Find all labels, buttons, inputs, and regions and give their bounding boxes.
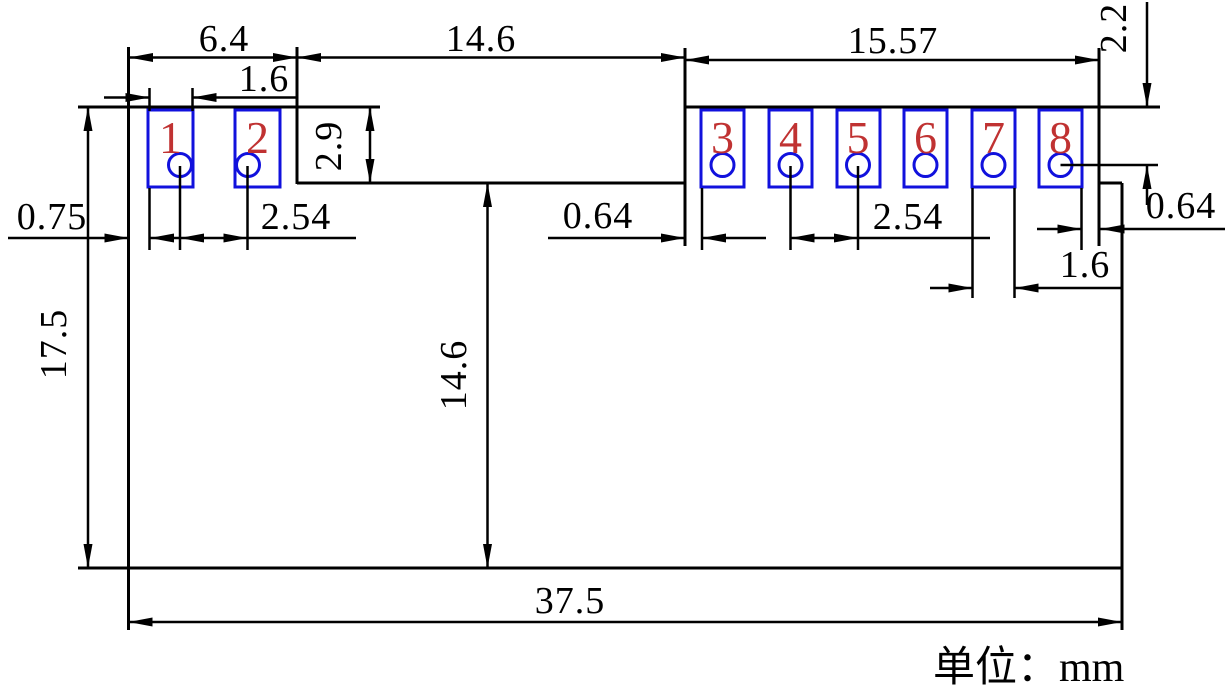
dim-pad7-width: 1.6: [930, 244, 1122, 293]
dim-total-width: 37.5: [129, 580, 1123, 627]
unit-label: 单位：mm: [933, 644, 1125, 691]
arrowhead-left: [791, 234, 815, 243]
arrowhead-right: [150, 234, 174, 243]
arrowhead-down: [84, 544, 93, 568]
arrowhead-left: [129, 53, 153, 62]
arrowhead-right: [1075, 56, 1099, 65]
pad-8: 8: [1039, 110, 1082, 187]
dim-hole-pitch-right: 2.54: [791, 196, 991, 243]
pad-5-number: 5: [847, 112, 870, 163]
dim-middle-section-height: 14.6: [433, 183, 492, 568]
arrowhead-left: [1058, 225, 1082, 234]
dim-value: 2.54: [873, 196, 944, 238]
arrowhead-right: [224, 234, 248, 243]
dim-value: 17.5: [33, 309, 75, 380]
arrowhead-left: [685, 56, 709, 65]
arrowhead-right: [661, 53, 685, 62]
dim-hole-pitch-left: 2.54: [180, 196, 356, 243]
drawing-canvas: 1 2 3 4 5 6 7: [0, 0, 1225, 692]
pad-4-number: 4: [779, 112, 802, 163]
arrowhead-left: [180, 234, 204, 243]
dim-total-height: 17.5: [33, 107, 93, 568]
arrowhead-left: [129, 618, 153, 627]
pad-2-number: 2: [246, 112, 269, 163]
dim-value: 0.75: [17, 196, 88, 238]
dim-middle-section-width: 14.6: [297, 18, 685, 62]
dim-value: 0.64: [1146, 185, 1217, 227]
arrowhead-left: [126, 93, 150, 102]
dim-value: 2.9: [308, 121, 350, 172]
dim-top-edge-to-hole8: 2.2: [1093, 2, 1152, 205]
pad-1: 1: [148, 110, 193, 187]
pad-3-number: 3: [711, 112, 734, 163]
pad-6: 6: [904, 110, 947, 187]
dim-right-section-width: 15.57: [685, 20, 1099, 65]
pad-7-number: 7: [982, 112, 1005, 163]
dim-left-edge-to-pad1: 0.75: [8, 196, 181, 243]
pad-3: 3: [701, 110, 744, 187]
dim-edge-to-pad3: 0.64: [548, 195, 766, 243]
dimensions: 6.4 14.6 15.57 1.6 2.: [8, 2, 1225, 627]
dim-pad1-width: 1.6: [104, 58, 297, 102]
arrowhead-left: [661, 234, 685, 243]
pad-6-number: 6: [914, 112, 937, 163]
dim-value: 14.6: [446, 18, 517, 60]
pad-1-number: 1: [159, 112, 182, 163]
arrowhead-left: [105, 234, 129, 243]
arrowhead-down: [1143, 83, 1152, 107]
arrowhead-right: [1015, 284, 1039, 293]
arrowhead-up: [483, 183, 492, 207]
pads: 1 2 3 4 5 6 7: [148, 110, 1082, 187]
arrowhead-down: [483, 544, 492, 568]
arrowhead-left: [297, 53, 321, 62]
arrowhead-right: [1098, 618, 1122, 627]
pad-2: 2: [235, 110, 280, 187]
arrowhead-up: [366, 107, 375, 131]
dim-value: 2.54: [261, 196, 332, 238]
dim-value: 14.6: [433, 340, 475, 411]
dim-pad8-to-edge: 0.64: [1037, 185, 1225, 234]
dim-left-section-width: 6.4: [129, 18, 297, 62]
dim-value: 2.2: [1093, 3, 1135, 54]
dim-value: 37.5: [535, 580, 606, 622]
pad-8-number: 8: [1049, 112, 1072, 163]
arrowhead-down: [366, 159, 375, 183]
dim-value: 0.64: [563, 195, 634, 237]
dim-value: 1.6: [239, 58, 290, 100]
dim-value: 6.4: [199, 18, 250, 60]
arrowhead-right: [193, 93, 217, 102]
dim-value: 15.57: [848, 20, 939, 62]
arrowhead-up: [84, 107, 93, 131]
dimension-drawing: 1 2 3 4 5 6 7: [0, 0, 1225, 692]
dim-value: 1.6: [1060, 244, 1111, 286]
dim-notch-depth: 2.9: [308, 107, 375, 183]
pad-7: 7: [972, 110, 1015, 187]
extension-lines: [150, 88, 1159, 298]
arrowhead-left: [949, 284, 973, 293]
arrowhead-right: [834, 234, 858, 243]
arrowhead-right: [702, 234, 726, 243]
arrowhead-right: [1101, 225, 1125, 234]
